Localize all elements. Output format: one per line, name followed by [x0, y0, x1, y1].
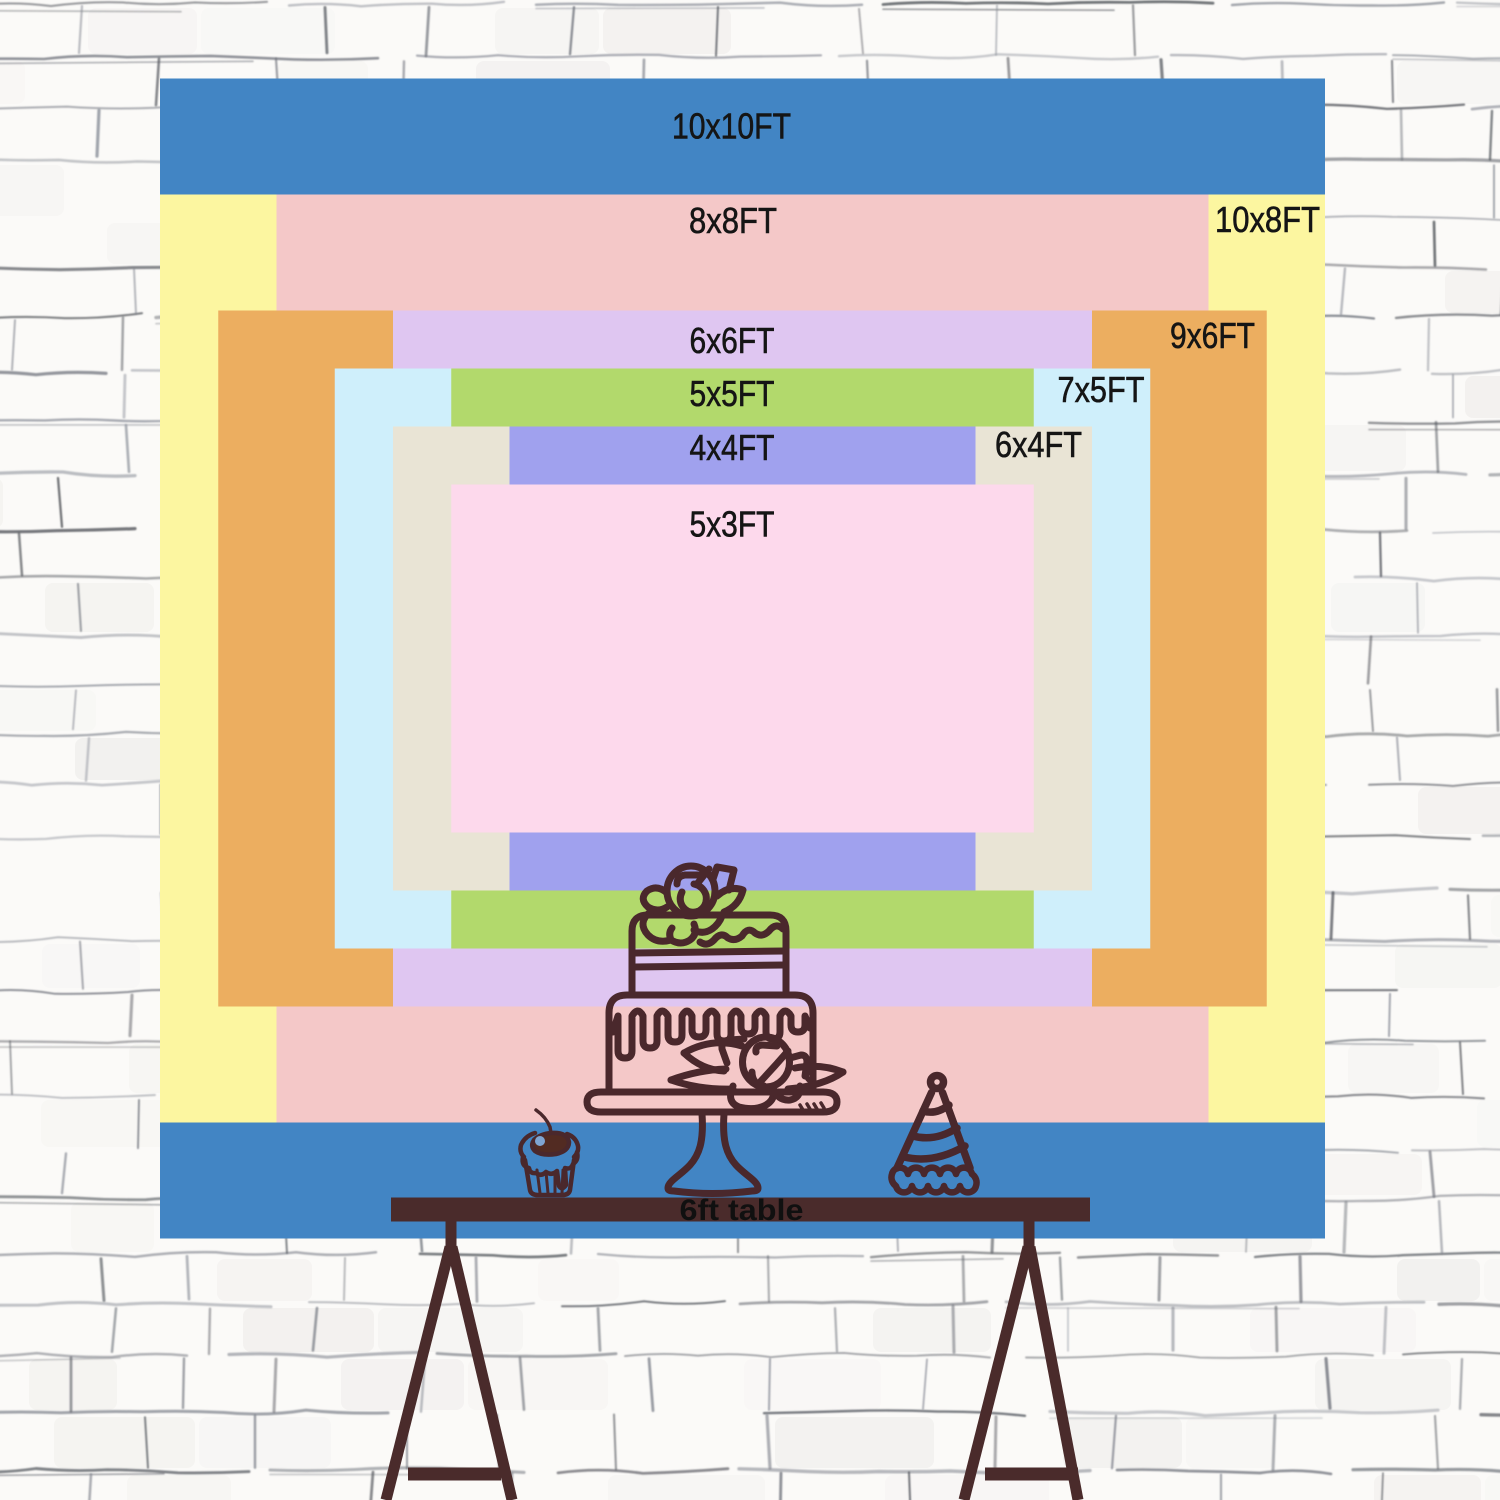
svg-text:5x3FT: 5x3FT [690, 504, 775, 545]
svg-text:5x5FT: 5x5FT [690, 373, 775, 414]
svg-text:4x4FT: 4x4FT [690, 427, 775, 468]
svg-text:7x5FT: 7x5FT [1058, 369, 1145, 410]
svg-text:6x6FT: 6x6FT [690, 320, 775, 361]
svg-text:6ft table: 6ft table [680, 1194, 804, 1227]
svg-text:9x6FT: 9x6FT [1170, 315, 1255, 356]
svg-text:10x8FT: 10x8FT [1215, 199, 1320, 240]
svg-text:8x8FT: 8x8FT [689, 200, 777, 241]
svg-text:10x10FT: 10x10FT [672, 106, 791, 147]
svg-text:6x4FT: 6x4FT [995, 424, 1082, 465]
